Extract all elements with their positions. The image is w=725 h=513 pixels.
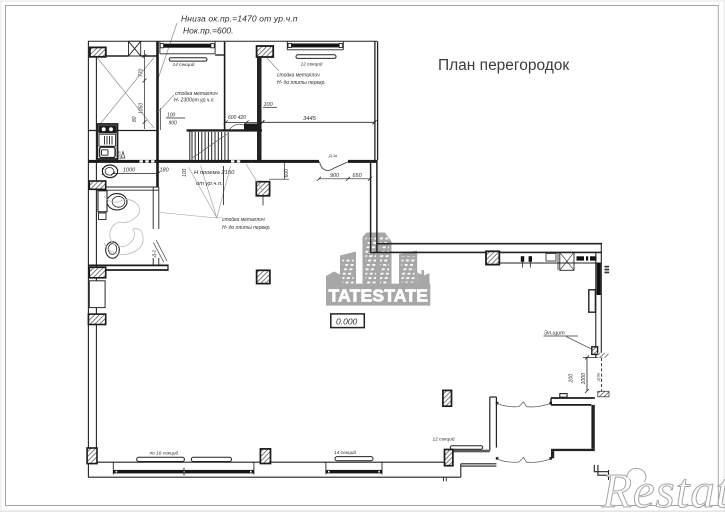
svg-text:стойка металлич: стойка металлич xyxy=(222,216,265,223)
svg-text:по 16 секций: по 16 секций xyxy=(150,450,179,457)
svg-text:600: 600 xyxy=(284,169,290,178)
svg-text:0.000: 0.000 xyxy=(336,316,358,326)
svg-text:770: 770 xyxy=(139,68,145,77)
svg-text:стойка металлич: стойка металлич xyxy=(277,72,320,79)
svg-text:180: 180 xyxy=(160,167,170,173)
svg-text:14 секций: 14 секций xyxy=(334,449,356,456)
svg-text:3445: 3445 xyxy=(303,116,317,122)
svg-text:Эл.щит: Эл.щит xyxy=(544,331,565,337)
svg-text:Д-1в: Д-1в xyxy=(328,154,337,158)
svg-text:900: 900 xyxy=(330,173,340,179)
svg-text:TATESTATE: TATESTATE xyxy=(328,286,428,306)
svg-text:1000: 1000 xyxy=(581,373,587,385)
svg-text:Нниза ок.пр.=1470 от ур.ч.п: Нниза ок.пр.=1470 от ур.ч.п xyxy=(181,14,298,24)
svg-text:100: 100 xyxy=(167,113,176,119)
svg-text:Н проема 2150: Н проема 2150 xyxy=(194,170,235,176)
svg-text:1050: 1050 xyxy=(139,103,145,114)
svg-text:100: 100 xyxy=(264,102,274,108)
svg-text:200: 200 xyxy=(569,374,575,384)
svg-text:Н- 2300от ур.ч.п.: Н- 2300от ур.ч.п. xyxy=(174,98,215,104)
svg-text:1016: 1016 xyxy=(118,150,122,159)
svg-text:14 секций: 14 секций xyxy=(173,61,195,68)
svg-text:100: 100 xyxy=(182,168,188,177)
svg-text:Restate: Restate xyxy=(601,463,725,513)
svg-text:80: 80 xyxy=(132,116,138,122)
svg-text:Нок.пр.=600.: Нок.пр.=600. xyxy=(183,26,234,36)
svg-text:Д-6в: Д-6в xyxy=(597,373,601,382)
svg-text:от ур.ч.п.: от ур.ч.п. xyxy=(196,181,223,187)
svg-text:Н- до плиты перекр.: Н- до плиты перекр. xyxy=(277,80,326,86)
svg-text:Н- до плиты перекр.: Н- до плиты перекр. xyxy=(222,225,271,231)
svg-text:12 секций: 12 секций xyxy=(301,61,323,68)
svg-text:900: 900 xyxy=(169,121,178,127)
svg-text:650: 650 xyxy=(353,173,363,179)
svg-text:12 секций: 12 секций xyxy=(433,435,455,442)
svg-text:1000: 1000 xyxy=(123,167,136,173)
svg-text:600 420: 600 420 xyxy=(228,115,246,121)
svg-text:Д-2: Д-2 xyxy=(152,249,157,258)
svg-text:План перегородок: План перегородок xyxy=(438,57,569,74)
svg-text:стойка металлич: стойка металлич xyxy=(175,90,218,97)
